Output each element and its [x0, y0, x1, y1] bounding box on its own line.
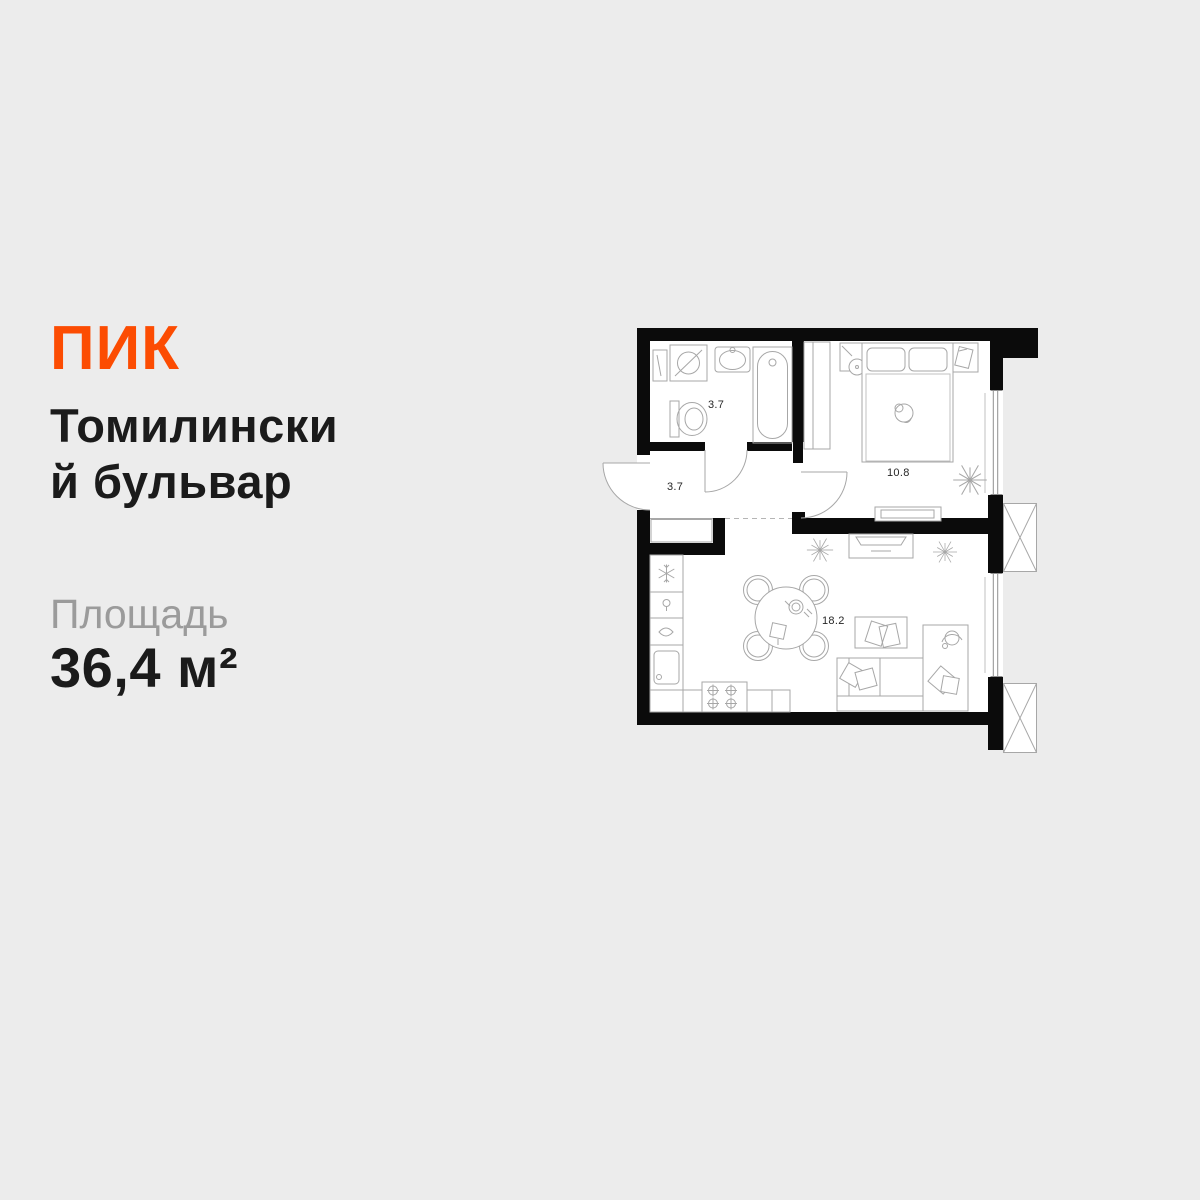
area-label: Площадь	[50, 594, 228, 635]
double-bed	[862, 343, 953, 462]
project-title-line2: й бульвар	[50, 455, 292, 508]
room-label-hallway: 3.7	[667, 481, 683, 493]
balcony-lower	[1004, 684, 1037, 753]
floor-plan-diagram: 3.7 3.7 10.8 18.2	[595, 315, 1060, 760]
sofa	[837, 658, 923, 711]
room-label-living-kitchen: 18.2	[822, 615, 845, 627]
entrance-door	[603, 455, 650, 510]
pik-logo: ПИК	[50, 318, 180, 380]
project-title-line1: Томилински	[50, 399, 338, 452]
tv-console	[849, 534, 913, 558]
stove-icon	[702, 682, 747, 712]
dining-table	[755, 587, 817, 649]
bedroom-tv-stand	[875, 507, 941, 521]
project-title: Томилинский бульвар	[50, 398, 450, 510]
desk-with-chair	[923, 625, 968, 711]
balcony-upper	[1004, 504, 1037, 572]
area-value: 36,4 м²	[50, 640, 238, 696]
room-label-bedroom: 10.8	[887, 467, 910, 479]
room-label-bathroom: 3.7	[708, 399, 724, 411]
